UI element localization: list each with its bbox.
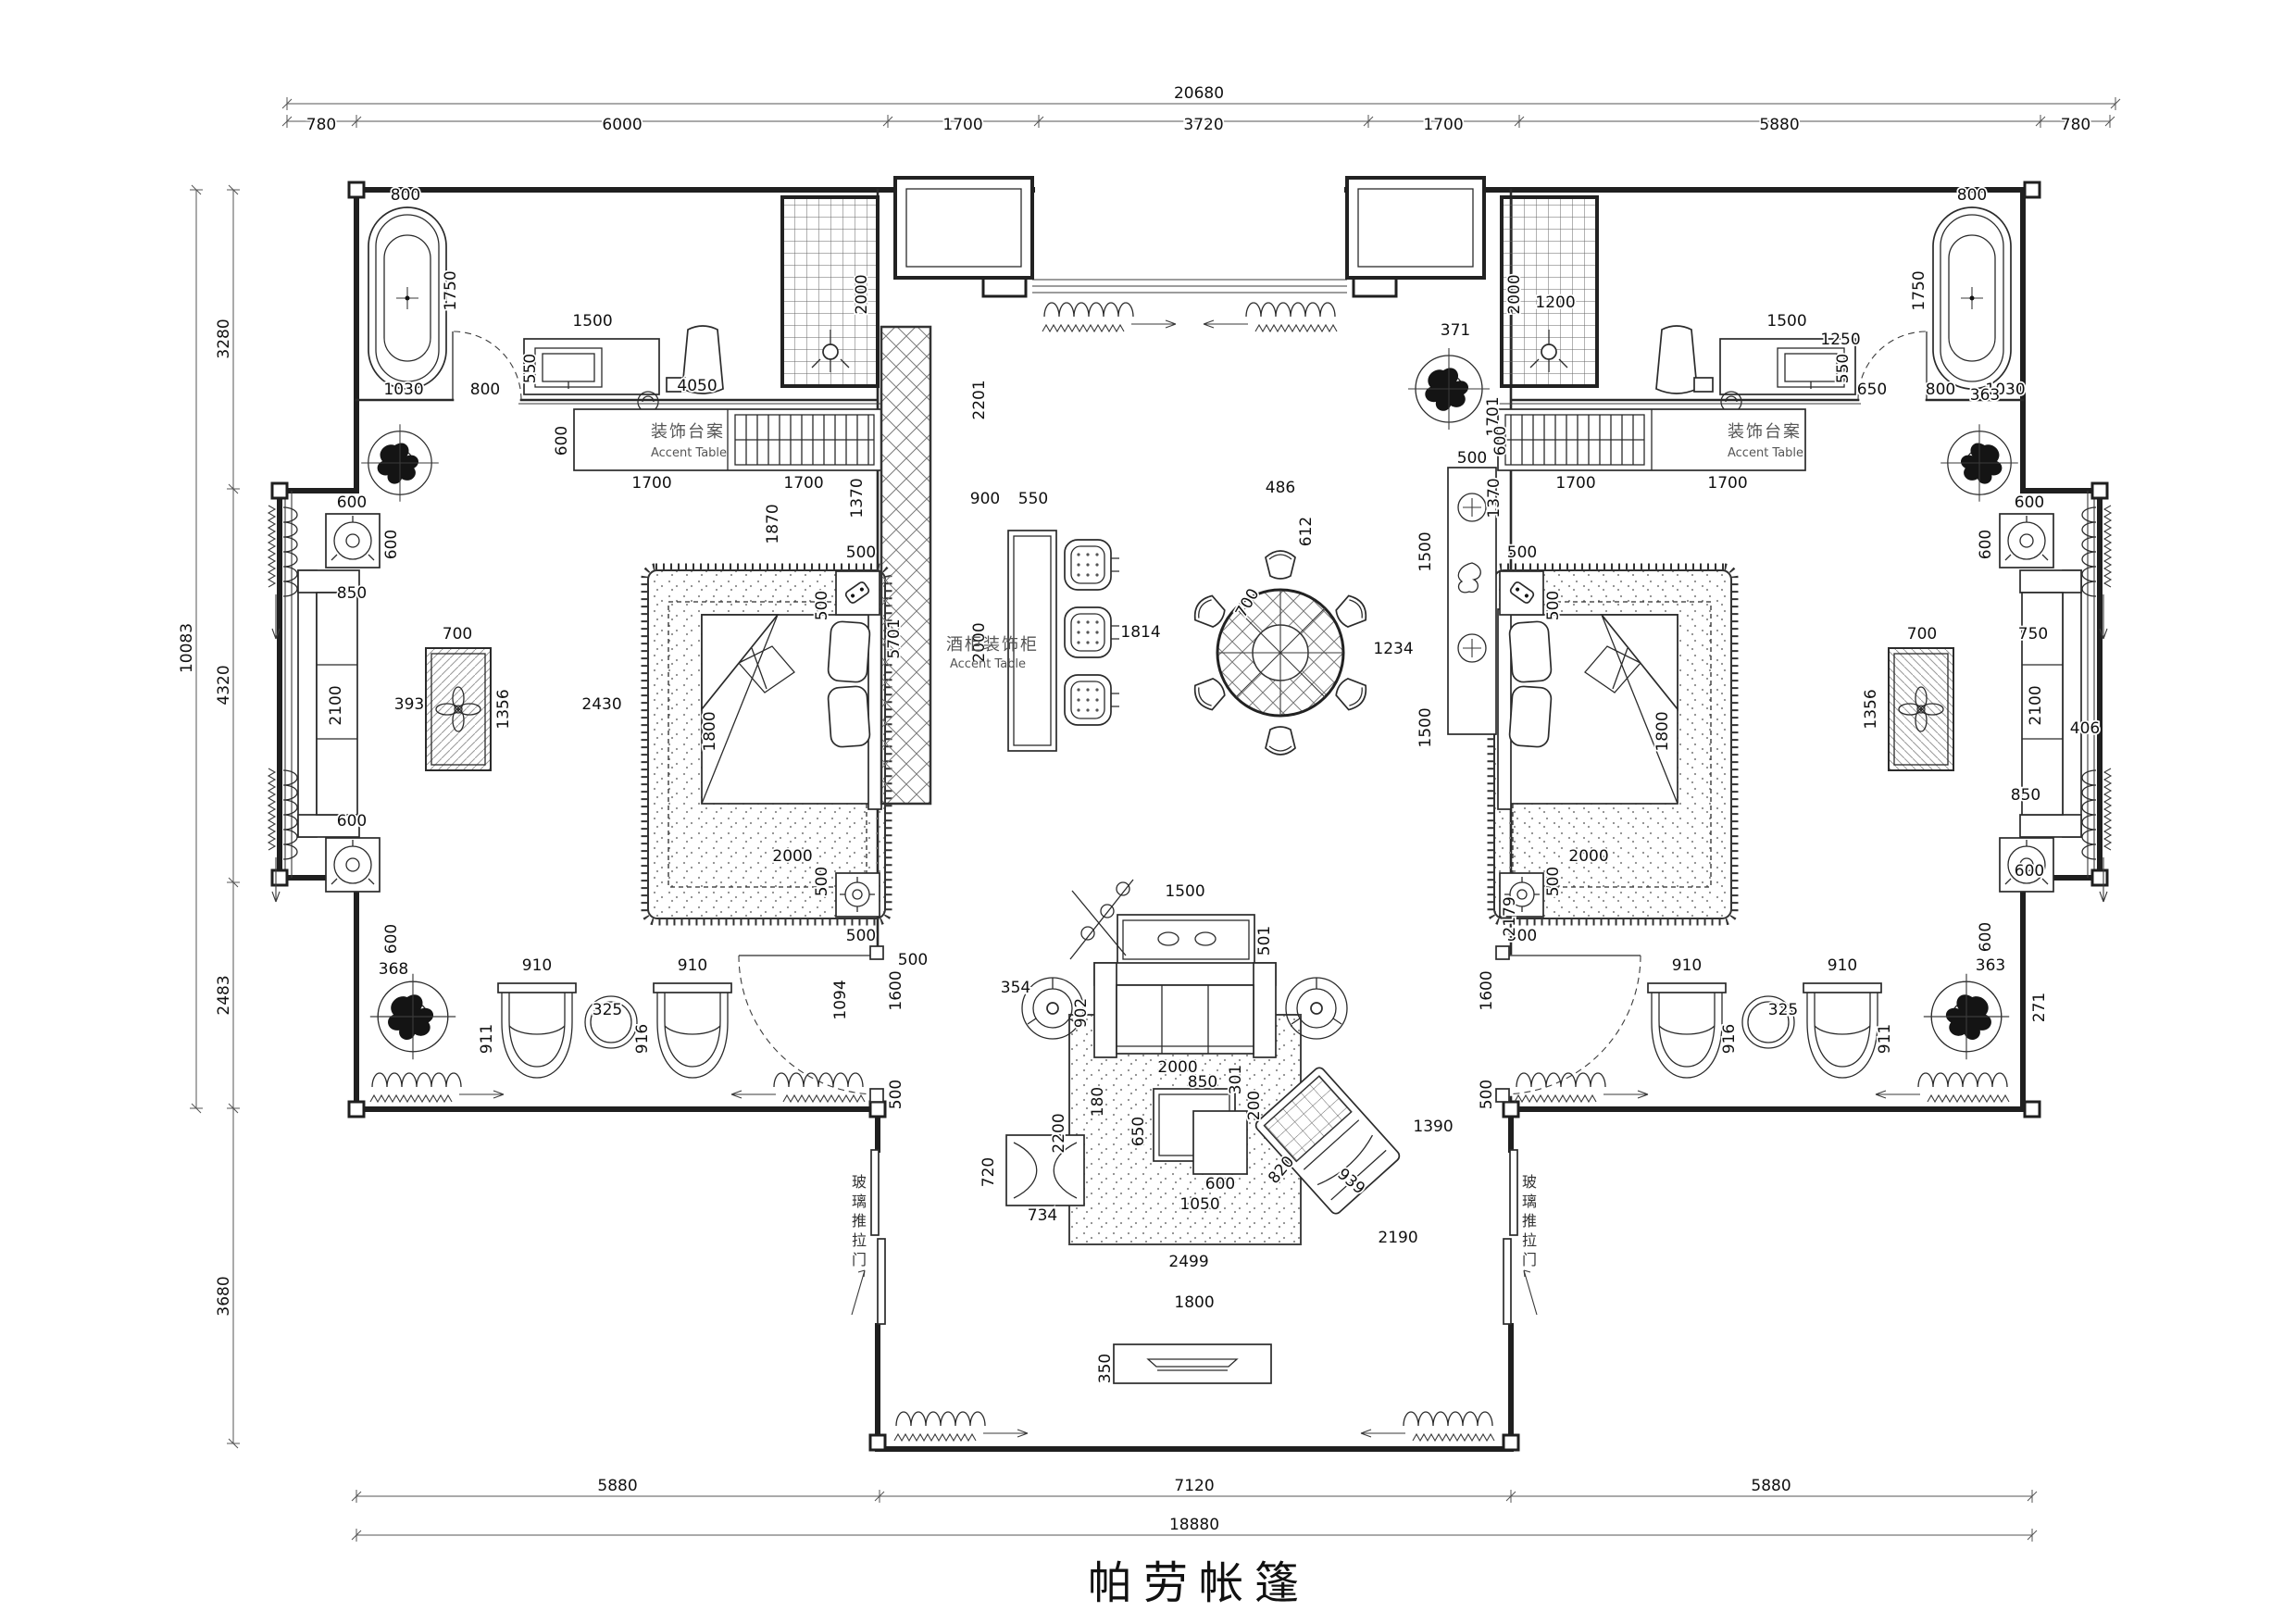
living-sofa bbox=[1094, 963, 1276, 1057]
dimension-label: 600 bbox=[1977, 530, 1995, 559]
dimension-label: 800 bbox=[1957, 186, 1987, 205]
annotation-label: Accent Table bbox=[950, 657, 1026, 671]
dimension-label: 4050 bbox=[677, 377, 717, 395]
dimension-label: 500 bbox=[1507, 543, 1537, 562]
dimension-label: 371 bbox=[1441, 321, 1470, 340]
dimension-label: 1500 bbox=[1165, 882, 1204, 901]
dimension-label: 911 bbox=[478, 1024, 496, 1054]
annotation-label: 装饰台案 bbox=[651, 422, 725, 442]
dimension-label: 500 bbox=[813, 591, 831, 620]
dimension-label: 1700 bbox=[942, 116, 982, 134]
dimension-label: 3280 bbox=[215, 319, 233, 358]
dimension-label: 1500 bbox=[1766, 312, 1806, 331]
dimension-label: 2190 bbox=[1378, 1229, 1417, 1247]
dimension-label: 1234 bbox=[1373, 640, 1413, 658]
curtain-porch-right bbox=[1204, 303, 1337, 331]
dimension-label: 2499 bbox=[1168, 1253, 1208, 1271]
dimension-chains bbox=[190, 97, 2120, 1542]
dimension-label: 1370 bbox=[848, 478, 867, 518]
dimension-label: 500 bbox=[1457, 449, 1487, 468]
dimension-label: 911 bbox=[1876, 1024, 1894, 1054]
annotation-label: 酒柜装饰柜 bbox=[946, 635, 1039, 655]
entry-closets bbox=[895, 178, 1484, 278]
dimension-label: 720 bbox=[980, 1157, 998, 1187]
left-suite bbox=[268, 197, 889, 1102]
dimension-label: 550 bbox=[1018, 490, 1048, 508]
dimension-label: 850 bbox=[337, 584, 367, 603]
dimension-label: 2201 bbox=[970, 380, 989, 419]
bar-stool-1 bbox=[1065, 540, 1119, 590]
dimension-label: 500 bbox=[846, 543, 876, 562]
dimension-label: 180 bbox=[1089, 1087, 1107, 1117]
bar-stool-2 bbox=[1065, 607, 1119, 657]
dimension-label: 5880 bbox=[1759, 116, 1799, 134]
dimension-label: 500 bbox=[1478, 1080, 1496, 1109]
dimension-label: 200 bbox=[1245, 1091, 1264, 1120]
dimension-label: 301 bbox=[1227, 1065, 1245, 1094]
dimension-label: 600 bbox=[2015, 862, 2044, 881]
dimension-label: 6000 bbox=[602, 116, 642, 134]
dimension-label: 2000 bbox=[1505, 274, 1524, 314]
dimension-label: 2430 bbox=[581, 695, 621, 714]
dimension-label: 2179 bbox=[1501, 896, 1519, 936]
dimension-label: 734 bbox=[1028, 1206, 1057, 1225]
dimension-label: 600 bbox=[1977, 922, 1995, 952]
annotation-label: 装饰台案 bbox=[1728, 422, 1802, 442]
dimension-label: 916 bbox=[1720, 1024, 1739, 1054]
dimension-label: 1870 bbox=[764, 504, 782, 543]
curtain-living-left bbox=[894, 1412, 1028, 1441]
dimension-label: 363 bbox=[1976, 956, 2005, 975]
dimension-label: 325 bbox=[1768, 1001, 1798, 1019]
dimension-label: 1700 bbox=[631, 474, 671, 493]
dimension-label: 700 bbox=[443, 625, 472, 643]
dimension-label: 1600 bbox=[1478, 970, 1496, 1010]
dimension-labels: 2068078060001700372017005880780100833280… bbox=[178, 84, 2100, 1534]
dimension-label: 900 bbox=[970, 490, 1000, 508]
dimension-label: 1814 bbox=[1120, 623, 1160, 642]
dimension-label: 1500 bbox=[1416, 531, 1435, 571]
dimension-label: 501 bbox=[1255, 926, 1274, 956]
dimension-label: 2483 bbox=[215, 975, 233, 1015]
annotation-label: 玻璃推拉门 bbox=[852, 1173, 867, 1268]
dimension-label: 354 bbox=[1001, 979, 1030, 997]
dimension-label: 368 bbox=[379, 960, 408, 979]
annotation-label: Accent Table bbox=[651, 446, 727, 460]
dimension-label: 500 bbox=[898, 951, 928, 969]
dimension-label: 650 bbox=[1129, 1117, 1148, 1146]
dimension-label: 1030 bbox=[383, 381, 423, 399]
floor-plan-drawing: 2068078060001700372017005880780100833280… bbox=[0, 0, 2296, 1624]
annotation-label: 玻璃推拉门 bbox=[1522, 1173, 1537, 1268]
right-suite bbox=[1491, 197, 2111, 1102]
dimension-label: 1356 bbox=[494, 689, 513, 729]
dimension-label: 486 bbox=[1266, 479, 1295, 497]
coffee-tables-living bbox=[1154, 1089, 1247, 1174]
dimension-label: 500 bbox=[1544, 591, 1563, 620]
dimension-label: 910 bbox=[522, 956, 552, 975]
dimension-label: 4320 bbox=[215, 665, 233, 705]
dimension-label: 800 bbox=[391, 186, 420, 205]
dimension-label: 550 bbox=[1834, 354, 1853, 383]
dimension-label: 600 bbox=[337, 812, 367, 831]
dimension-label: 650 bbox=[1857, 381, 1887, 399]
dimension-label: 3680 bbox=[215, 1276, 233, 1316]
dimension-label: 612 bbox=[1297, 517, 1316, 546]
dimension-label: 2100 bbox=[327, 685, 345, 725]
dimension-label: 600 bbox=[382, 530, 401, 559]
console-table bbox=[1117, 915, 1254, 965]
plant-entry bbox=[1408, 348, 1490, 430]
dimension-label: 500 bbox=[846, 927, 876, 945]
dimension-label: 1390 bbox=[1413, 1118, 1453, 1136]
dimension-label: 2100 bbox=[2027, 685, 2045, 725]
dimension-label: 271 bbox=[2030, 993, 2049, 1022]
side-table-right bbox=[1286, 978, 1347, 1039]
dimension-label: 325 bbox=[593, 1001, 622, 1019]
dimension-label: 406 bbox=[2070, 719, 2100, 738]
floor-plan-sheet: 2068078060001700372017005880780100833280… bbox=[0, 0, 2296, 1624]
dimension-label: 1700 bbox=[1707, 474, 1747, 493]
dimension-label: 363 bbox=[1970, 386, 2000, 405]
dimension-label: 600 bbox=[382, 924, 401, 954]
dimension-label: 393 bbox=[394, 695, 424, 714]
dining-chair-n bbox=[1266, 551, 1295, 579]
dimension-label: 2000 bbox=[772, 847, 812, 866]
dimension-label: 600 bbox=[2015, 493, 2044, 512]
dimension-label: 600 bbox=[553, 426, 571, 456]
dimension-label: 1800 bbox=[1653, 711, 1672, 751]
annotation-label: Accent Table bbox=[1728, 446, 1803, 460]
dimension-label: 500 bbox=[887, 1080, 905, 1109]
dimension-label: 7120 bbox=[1174, 1477, 1214, 1495]
dimension-label: 902 bbox=[1072, 998, 1091, 1028]
dimension-label: 1600 bbox=[887, 970, 905, 1010]
dimension-label: 1356 bbox=[1862, 689, 1880, 729]
dimension-label: 780 bbox=[306, 116, 336, 134]
dimension-label: 5880 bbox=[1751, 1477, 1791, 1495]
dimension-label: 3720 bbox=[1183, 116, 1223, 134]
dimension-label: 1750 bbox=[442, 270, 460, 310]
dimension-label: 1700 bbox=[1555, 474, 1595, 493]
dimension-label: 850 bbox=[2011, 786, 2040, 805]
dimension-label: 20680 bbox=[1174, 84, 1224, 103]
dimension-label: 500 bbox=[813, 867, 831, 896]
dimension-label: 850 bbox=[1188, 1073, 1217, 1092]
dimension-label: 910 bbox=[1828, 956, 1857, 975]
dimension-label: 350 bbox=[1096, 1354, 1115, 1383]
dimension-label: 800 bbox=[1926, 381, 1955, 399]
dimension-label: 1800 bbox=[701, 711, 719, 751]
bar-stool-3 bbox=[1065, 675, 1119, 725]
dimension-label: 1700 bbox=[1423, 116, 1463, 134]
dimension-label: 1700 bbox=[783, 474, 823, 493]
dimension-label: 10083 bbox=[178, 623, 196, 673]
dimension-label: 910 bbox=[1672, 956, 1702, 975]
dimension-label: 18880 bbox=[1169, 1516, 1219, 1534]
dimension-label: 1050 bbox=[1179, 1195, 1219, 1214]
dimension-label: 2000 bbox=[1568, 847, 1608, 866]
dimension-label: 1250 bbox=[1820, 331, 1860, 349]
dimension-label: 916 bbox=[633, 1024, 652, 1054]
dimension-label: 1200 bbox=[1535, 294, 1575, 312]
dimension-label: 1500 bbox=[1416, 707, 1435, 747]
bench bbox=[1006, 1135, 1084, 1206]
dining-chair-s bbox=[1266, 727, 1295, 755]
dimension-label: 750 bbox=[2018, 625, 2048, 643]
dimension-label: 2200 bbox=[1050, 1113, 1068, 1153]
dimension-label: 700 bbox=[1907, 625, 1937, 643]
dimension-label: 910 bbox=[678, 956, 707, 975]
dimension-label: 1370 bbox=[1485, 478, 1504, 518]
dimension-label: 5701 bbox=[885, 618, 904, 658]
dimension-label: 600 bbox=[1491, 426, 1510, 456]
curtain-living-right bbox=[1361, 1412, 1494, 1441]
dimension-label: 1500 bbox=[572, 312, 612, 331]
dimension-label: 800 bbox=[470, 381, 500, 399]
dimension-label: 1800 bbox=[1174, 1293, 1214, 1312]
dimension-label: 1094 bbox=[831, 980, 850, 1019]
dimension-label: 500 bbox=[1544, 867, 1563, 896]
dimension-label: 780 bbox=[2061, 116, 2090, 134]
dimension-label: 5880 bbox=[597, 1477, 637, 1495]
dimension-label: 600 bbox=[337, 493, 367, 512]
tv-console bbox=[1114, 1344, 1271, 1383]
dimension-label: 1750 bbox=[1910, 270, 1928, 310]
drawing-title: 帕劳帐篷 bbox=[1088, 1557, 1310, 1609]
corridor-wardrobe bbox=[881, 327, 930, 804]
dimension-label: 600 bbox=[1205, 1175, 1235, 1193]
dimension-label: 2000 bbox=[853, 274, 871, 314]
curtain-porch-left bbox=[1042, 303, 1176, 331]
dimension-label: 550 bbox=[521, 354, 540, 383]
